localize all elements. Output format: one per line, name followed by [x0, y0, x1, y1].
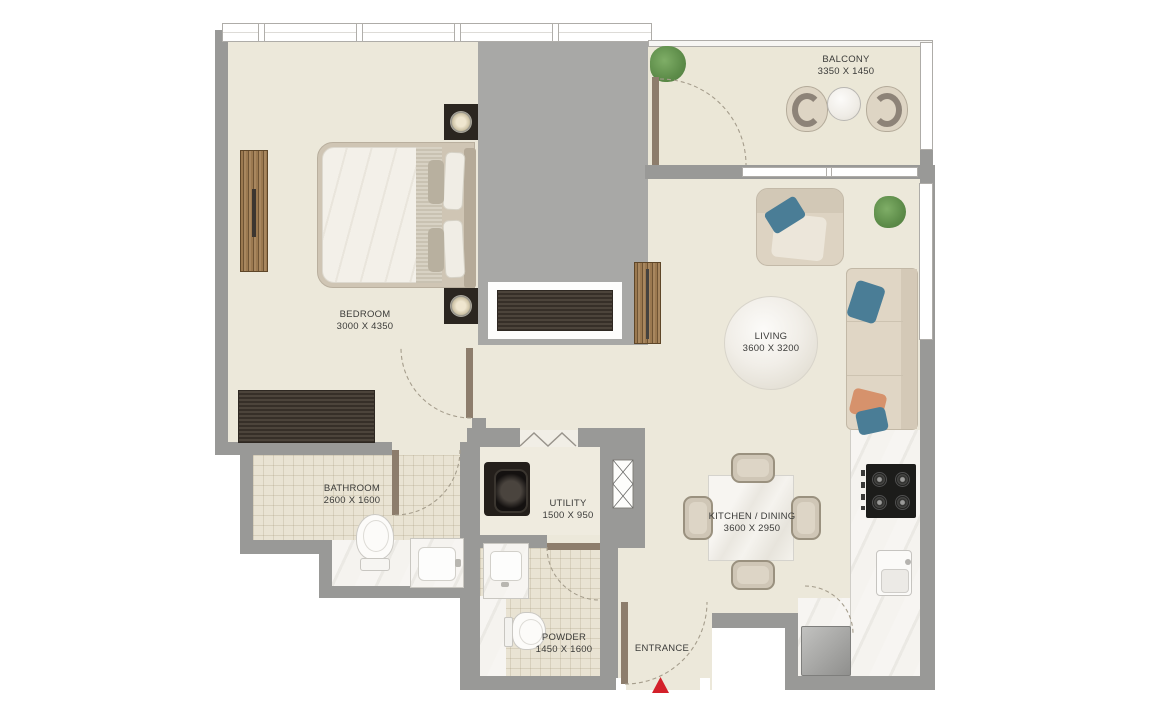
faucet-icon: [905, 559, 911, 565]
wall: [472, 418, 486, 443]
faucet-icon: [455, 559, 461, 567]
bed-cushion: [428, 228, 444, 272]
burner-icon: [895, 495, 910, 510]
living-window-right: [919, 183, 933, 340]
dining-chair: [731, 453, 775, 483]
powder-label: POWDER 1450 X 1600: [504, 632, 624, 655]
wardrobe-handle: [252, 189, 256, 237]
toilet-tank: [360, 558, 390, 571]
cooktop-knobs: [861, 470, 865, 510]
bed-pillow: [442, 220, 465, 279]
burner-icon: [872, 495, 887, 510]
bathroom-label: BATHROOM 2600 X 1600: [292, 483, 412, 506]
kitchen-sink: [876, 550, 912, 596]
room-name: BATHROOM: [324, 483, 380, 494]
wall: [467, 676, 618, 690]
kitchen-dining-label: KITCHEN / DINING 3600 X 2950: [692, 511, 812, 534]
balcony-parapet-top: [648, 40, 933, 47]
entrance-label: ENTRANCE: [612, 643, 712, 655]
lamp-icon: [450, 295, 472, 317]
room-dims: 3600 X 2950: [692, 523, 812, 535]
room-dims: 3000 X 4350: [305, 321, 425, 333]
balcony-window-right: [920, 42, 933, 150]
wall: [215, 30, 228, 443]
sink-basin: [881, 569, 909, 593]
room-dims: 3600 X 3200: [711, 343, 831, 355]
bedroom-wardrobe: [240, 150, 268, 272]
bed-duvet: [322, 147, 418, 283]
utility-door-gap: [520, 430, 578, 447]
window-mullion: [826, 167, 832, 177]
dining-chair: [731, 560, 775, 590]
lamp-icon: [450, 111, 472, 133]
vanity-basin: [490, 551, 522, 581]
room-name: KITCHEN / DINING: [709, 511, 796, 522]
sofa-back: [901, 269, 917, 429]
room-name: POWDER: [542, 632, 586, 643]
burner-icon: [895, 472, 910, 487]
chair-back: [792, 93, 822, 127]
window-mullion: [356, 23, 363, 42]
bedroom-dresser: [238, 390, 375, 443]
room-name: LIVING: [755, 331, 788, 342]
wall: [785, 676, 935, 690]
powder-marble-strip: [480, 596, 506, 676]
nightstand: [444, 104, 478, 140]
entrance-jamb: [700, 678, 710, 690]
cooktop: [866, 464, 916, 518]
bed-cushion: [428, 160, 444, 204]
toilet: [356, 514, 394, 560]
balcony-label: BALCONY 3350 X 1450: [786, 54, 906, 77]
powder-vanity: [483, 543, 529, 599]
faucet-icon: [501, 582, 509, 587]
fridge: [801, 626, 851, 676]
plant-icon: [874, 196, 906, 228]
floor-plan: BEDROOM 3000 X 4350 BALCONY 3350 X 1450 …: [0, 0, 1152, 728]
tv-console: [634, 262, 661, 344]
living-label: LIVING 3600 X 3200: [711, 331, 831, 354]
balcony-chair: [866, 86, 908, 132]
room-name: BEDROOM: [340, 309, 391, 320]
room-name: ENTRANCE: [635, 643, 689, 654]
balcony-table: [827, 87, 861, 121]
utility-label: UTILITY 1500 X 950: [508, 498, 628, 521]
pillow-blue: [846, 279, 886, 324]
wall: [920, 150, 933, 165]
balcony-door-leaf: [652, 77, 659, 165]
exterior-notch: [712, 628, 785, 690]
bed-pillow: [442, 152, 465, 211]
bedroom-door-leaf: [466, 348, 473, 418]
bed-headboard: [464, 148, 476, 288]
window-mullion: [258, 23, 265, 42]
wall: [600, 545, 618, 690]
toilet-seat: [363, 520, 389, 552]
window-mullion: [454, 23, 461, 42]
chair-back: [872, 93, 902, 127]
sofa-seam: [847, 375, 903, 376]
room-dims: 1500 X 950: [508, 510, 628, 522]
room-name: UTILITY: [549, 498, 586, 509]
burner-icon: [872, 472, 887, 487]
armchair: [756, 188, 844, 266]
sofa: [846, 268, 918, 430]
balcony-chair: [786, 86, 828, 132]
window-mullion: [552, 23, 559, 42]
core-closet: [497, 290, 613, 331]
wall-shaft-column: [600, 428, 645, 548]
powder-door-leaf: [547, 543, 600, 550]
nightstand: [444, 288, 478, 324]
console-divider: [646, 269, 649, 339]
wall: [240, 540, 332, 554]
room-name: BALCONY: [822, 54, 869, 65]
room-dims: 1450 X 1600: [504, 644, 624, 656]
room-dims: 2600 X 1600: [292, 495, 412, 507]
window-band-top: [222, 23, 652, 42]
vanity-basin: [418, 547, 456, 581]
room-dims: 3350 X 1450: [786, 66, 906, 78]
bathroom-door-gap: [392, 442, 460, 455]
bathroom-vanity: [410, 538, 464, 588]
bedroom-label: BEDROOM 3000 X 4350: [305, 309, 425, 332]
